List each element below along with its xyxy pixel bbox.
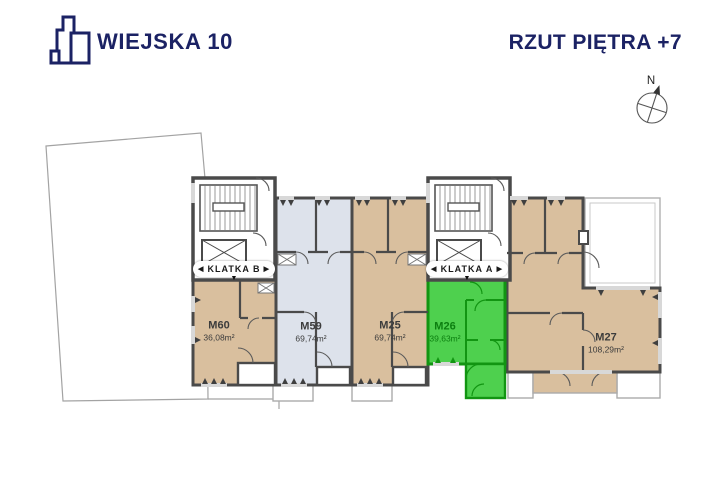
compass-icon [633, 81, 674, 127]
brand-logo-icon [51, 17, 89, 63]
arrow-down-icon: ▼ [464, 275, 471, 282]
arrow-right-icon: ▶ [497, 266, 503, 273]
apartment-area: 69,74m² [295, 334, 326, 345]
staircase-name: KLATKA A [441, 264, 494, 274]
arrow-left-icon: ◀ [431, 266, 437, 273]
balcony-m27-right [617, 372, 660, 398]
compass-north-label: N [647, 75, 655, 87]
apartment-code: M59 [295, 319, 326, 333]
apartment-area: 108,29m² [588, 345, 624, 356]
apartment-code: M27 [588, 330, 624, 344]
loggia-m25 [393, 367, 426, 385]
brand-name: WIEJSKA 10 [97, 29, 233, 55]
loggia-m60 [238, 363, 275, 385]
balcony-m27-middle [533, 372, 617, 393]
apartment-label-m27[interactable]: M27 108,29m² [588, 330, 624, 355]
apartment-area: 69,74m² [374, 333, 405, 344]
apartment-m59-shape[interactable] [276, 198, 352, 385]
page-title: RZUT PIĘTRA +7 [509, 31, 682, 55]
loggia-m59 [317, 367, 350, 385]
apartment-area: 36,08m² [203, 333, 234, 344]
apartment-area: 39,63m² [429, 334, 460, 345]
apartment-code: M25 [374, 318, 405, 332]
balcony-m27-left [508, 372, 533, 398]
arrow-left-icon: ◀ [198, 266, 204, 273]
terrace [585, 198, 660, 288]
apartment-label-m60[interactable]: M60 36,08m² [203, 318, 234, 343]
apartment-code: M26 [429, 319, 460, 333]
balcony-m59 [273, 385, 313, 401]
floorplan-drawing [0, 0, 707, 500]
balcony-m25 [352, 385, 392, 401]
apartment-label-m59[interactable]: M59 69,74m² [295, 319, 326, 344]
apartment-code: M60 [203, 318, 234, 332]
floorplan-page: WIEJSKA 10 RZUT PIĘTRA +7 N ◀ KLATKA B ▶… [0, 0, 707, 500]
apartment-label-m26[interactable]: M26 39,63m² [429, 319, 460, 344]
apartment-m25-shape[interactable] [352, 198, 428, 385]
staircase-name: KLATKA B [208, 264, 261, 274]
arrow-right-icon: ▶ [264, 266, 270, 273]
apartment-label-m25[interactable]: M25 69,74m² [374, 318, 405, 343]
arrow-down-icon: ▼ [231, 275, 238, 282]
